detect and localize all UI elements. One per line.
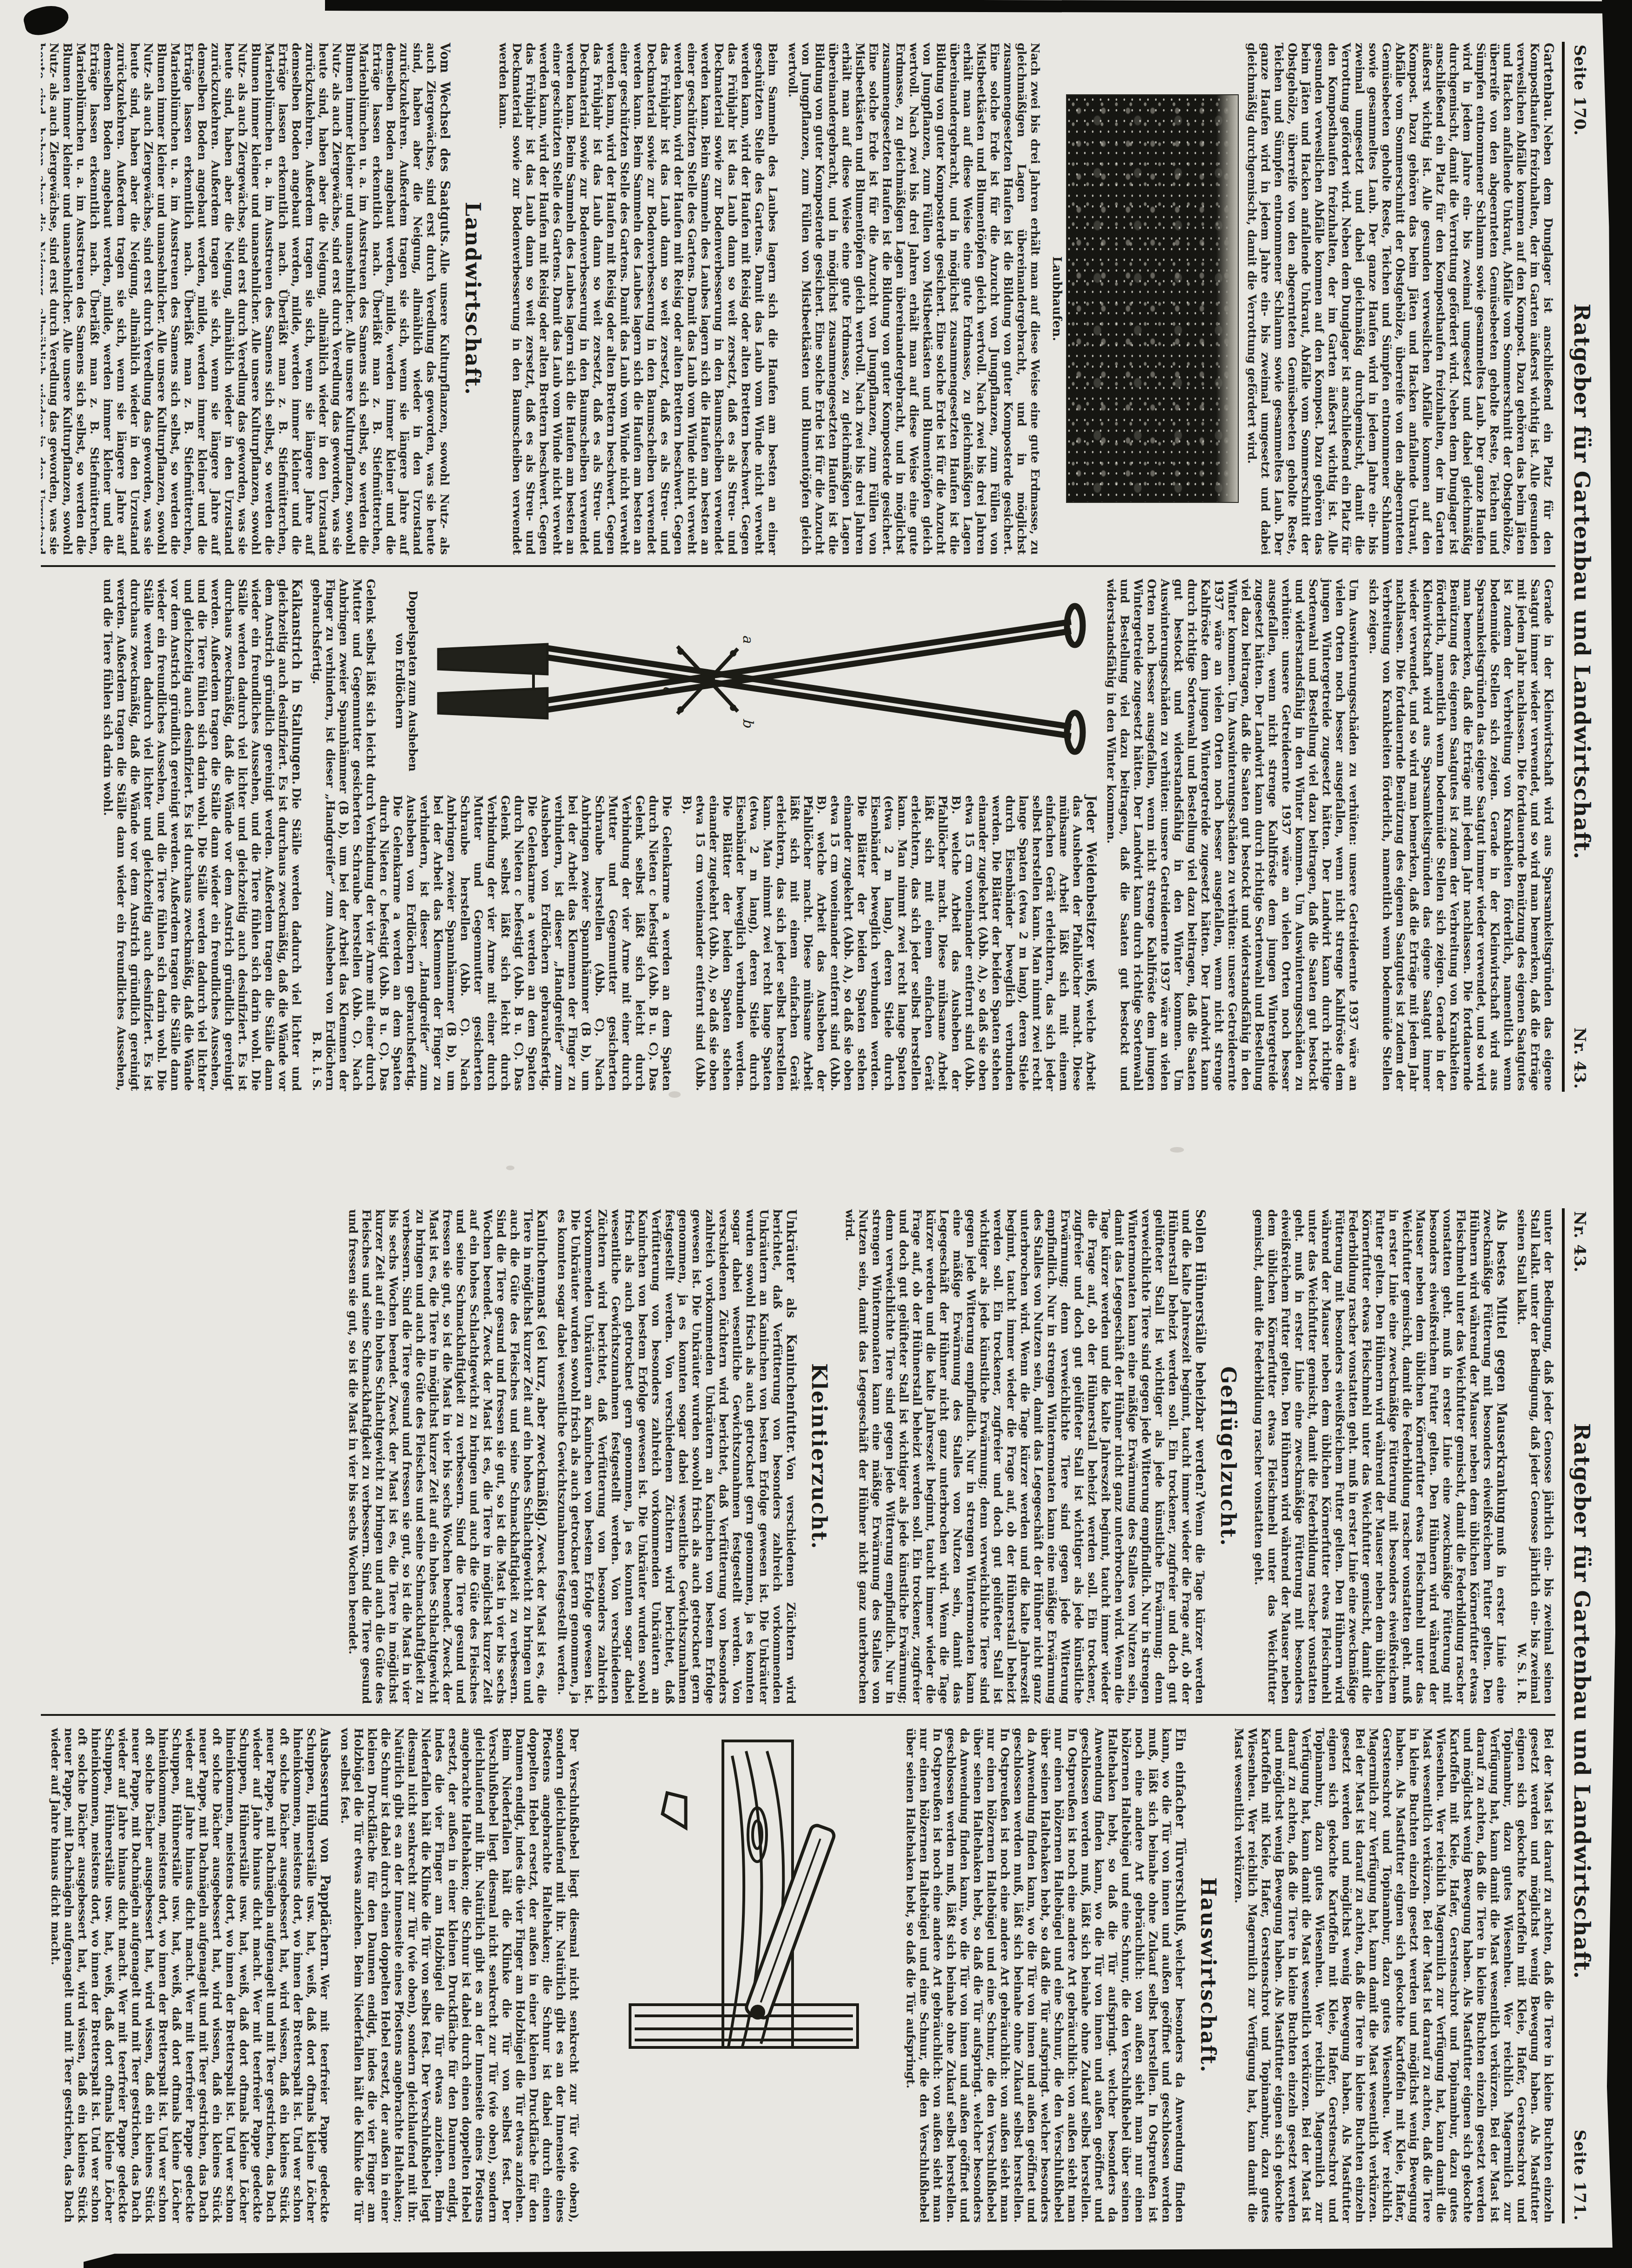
- article-mast-fortsetzung: Bei der Mast ist darauf zu achten, daß d…: [1232, 1728, 1555, 2222]
- article-stall-kalken: unter der Bedingung, daß jeder Genosse j…: [1515, 1209, 1555, 1704]
- article-body: Neben dem Dunglager ist anschließend ein…: [1245, 43, 1555, 555]
- article-signature: W. S. i. R.: [1515, 1634, 1528, 1704]
- article-body: unter der Bedingung, daß jeder Genosse j…: [1515, 1209, 1555, 1704]
- article-body: Zweck der Mast ist es, die Tiere in mögl…: [346, 1209, 548, 1704]
- page-170-region: Seite 170. Ratgeber für Gartenbau und La…: [41, 22, 1601, 1111]
- scan-smudge: [506, 1166, 514, 1170]
- article-auswinterung: Um Auswinterungsschäden zu verhüten: uns…: [1105, 579, 1360, 1091]
- page-170: Seite 170. Ratgeber für Gartenbau und La…: [41, 22, 1601, 1111]
- article-gartenbau: Gartenbau.Neben dem Dunglager ist anschl…: [1245, 43, 1555, 555]
- label-c: c: [660, 686, 676, 695]
- page-171-region: Nr. 43. Ratgeber für Gartenbau und Landw…: [41, 1189, 1601, 2243]
- page-number: Seite 171.: [1571, 2130, 1589, 2221]
- section-heading-kleintierzucht: Kleintierzucht.: [807, 1209, 831, 1704]
- article-lead: Ausbesserung von Pappdächern.: [318, 1728, 332, 1974]
- article-lead: Ein einfacher Türverschluß,: [1173, 1728, 1188, 1939]
- page-171-columns: unter der Bedingung, daß jeder Genosse j…: [41, 1208, 1562, 2223]
- article-body: Gerade in der Kleinwirtschaft wird aus S…: [1367, 579, 1555, 1091]
- article-body: Die Ställe werden dadurch viel lichter u…: [101, 579, 303, 1091]
- page-171: Nr. 43. Ratgeber für Gartenbau und Landw…: [41, 1189, 1601, 2243]
- section-heading-gefluegelzucht: Geflügelzucht.: [1216, 1209, 1240, 1704]
- article-huehnerstall-heizung: Sollen Hühnerställe beheizbar werden?Wen…: [843, 1209, 1207, 1704]
- section-heading-hauswirtschaft: Hauswirtschaft.: [1196, 1728, 1220, 2222]
- article-body: Wer mit teerfreier Pappe gedeckte Schupp…: [49, 1728, 332, 2222]
- article-kalkanstrich: Kalkanstrich in Stallungen.Die Ställe we…: [101, 579, 304, 1091]
- article-kaninchenmast: Kaninchenmast (sei kurz, aber zweckmäßig…: [346, 1209, 549, 1704]
- article-kompost: Nach zwei bis drei Jahren erhält man auf…: [786, 43, 1042, 555]
- page-171-column-1: unter der Bedingung, daß jeder Genosse j…: [41, 1208, 1555, 1714]
- section-heading-landwirtschaft: Landwirtschaft.: [461, 43, 485, 555]
- article-lead: Jeder Weidenbesitzer weiß,: [1084, 795, 1099, 999]
- laubhaufen-caption: Laubhaufen.: [1050, 43, 1064, 555]
- article-lead: Sollen Hühnerställe beheizbar werden?: [1193, 1209, 1208, 1500]
- article-body: Der Verschlußhebel liegt diesmal nicht s…: [338, 1728, 581, 2222]
- article-lead: Vom Wechsel des Saatguts.: [438, 43, 452, 249]
- article-body: Bei der Mast ist darauf zu achten, daß d…: [1232, 1728, 1555, 2222]
- article-signature: B. R. i. S.: [310, 1022, 324, 1091]
- scan-smudge: [669, 1091, 681, 1098]
- page-170-columns: Gartenbau.Neben dem Dunglager ist anschl…: [41, 42, 1562, 1092]
- issue-number: Nr. 43.: [1571, 1211, 1589, 1272]
- issue-number: Nr. 43.: [1571, 1028, 1589, 1089]
- scan-smudge: [1170, 1147, 1184, 1153]
- label-b: b: [740, 718, 756, 728]
- article-body: Wenn die Tage kürzer werden und die kalt…: [843, 1209, 1207, 1704]
- page-171-masthead: Nr. 43. Ratgeber für Gartenbau und Landw…: [1562, 1208, 1596, 2223]
- page-171-column-2: Bei der Mast ist darauf zu achten, daß d…: [41, 1714, 1555, 2223]
- page-170-column-1: Gartenbau.Neben dem Dunglager ist anschl…: [41, 42, 1555, 565]
- page-170-masthead: Seite 170. Ratgeber für Gartenbau und La…: [1562, 42, 1596, 1092]
- article-lead: Unkräuter als Kaninchenfutter.: [784, 1209, 799, 1456]
- article-saatgut: Vom Wechsel des Saatguts.Alle unsere Kul…: [41, 43, 452, 555]
- page-170-inner: Seite 170. Ratgeber für Gartenbau und La…: [41, 22, 1601, 1111]
- newspaper-scan: { "colors": { "paper": "#e8e7e2", "ink":…: [0, 0, 1632, 2268]
- article-body: Alle unsere Kulturpflanzen, sowohl Nutz-…: [41, 43, 451, 555]
- article-unkraeuter: Unkräuter als Kaninchenfutter.Von versch…: [555, 1209, 798, 1704]
- page-170-column-2: Gerade in der Kleinwirtschaft wird aus S…: [41, 565, 1555, 1092]
- label-a: a: [740, 635, 756, 643]
- article-tuerverschluss-2: Der Verschlußhebel liegt diesmal nicht s…: [338, 1728, 581, 2222]
- article-tuerverschluss-1: Ein einfacher Türverschluß,welcher beson…: [904, 1728, 1187, 2222]
- article-lead: Kaninchenmast (sei kurz, aber zweckmäßig…: [535, 1209, 549, 1534]
- article-lead: Gartenbau.: [1541, 43, 1555, 124]
- article-laub: Beim Sammeln des Laubes lagern sich die …: [497, 43, 780, 555]
- page-number: Seite 170.: [1571, 45, 1589, 136]
- article-body: muß in erster Linie eine zweckmäßige Füt…: [1252, 1209, 1508, 1704]
- scan-border-top: [325, 0, 1632, 13]
- scan-border-bottom: [84, 2248, 1632, 2268]
- article-body: welcher besonders da Anwendung finden ka…: [904, 1728, 1187, 2222]
- article-mauser: Als bestes Mittel gegen Mauserkrankungmu…: [1252, 1209, 1508, 1704]
- article-lead: Kalkanstrich in Stallungen.: [290, 579, 304, 788]
- doppelspaten-figure: a b c Doppelspaten zum Ausheben von Erdl…: [393, 579, 1095, 783]
- article-saatgut-fortsetzung: Gerade in der Kleinwirtschaft wird aus S…: [1367, 579, 1555, 1091]
- tuerverschluss-figure: [588, 1728, 885, 2222]
- tuerverschluss-drawing: [593, 1728, 885, 2072]
- journal-title: Ratgeber für Gartenbau und Landwirtschaf…: [1569, 304, 1594, 860]
- journal-title: Ratgeber für Gartenbau und Landwirtschaf…: [1569, 1423, 1594, 1979]
- article-body: Nach zwei bis drei Jahren erhält man auf…: [786, 43, 1042, 555]
- article-body: Von verschiedenen Züchtern wird berichte…: [555, 1209, 798, 1704]
- article-body: Um Auswinterungsschäden zu verhüten: uns…: [1105, 579, 1360, 1091]
- doppelspaten-caption: Doppelspaten zum Ausheben von Erdlöchern: [393, 579, 419, 783]
- laubhaufen-photo: [1066, 94, 1239, 503]
- article-body: welche Arbeit das Ausheben der Pfahllöch…: [680, 795, 1098, 1091]
- article-lead: Als bestes Mittel gegen Mauserkrankung: [1495, 1209, 1509, 1526]
- doppelspaten-drawing: a b c: [422, 579, 1095, 783]
- page-171-inner: Nr. 43. Ratgeber für Gartenbau und Landw…: [41, 1189, 1601, 2243]
- article-pappdaecher: Ausbesserung von Pappdächern.Wer mit tee…: [49, 1728, 332, 2222]
- article-body: Beim Sammeln des Laubes lagern sich die …: [497, 43, 780, 555]
